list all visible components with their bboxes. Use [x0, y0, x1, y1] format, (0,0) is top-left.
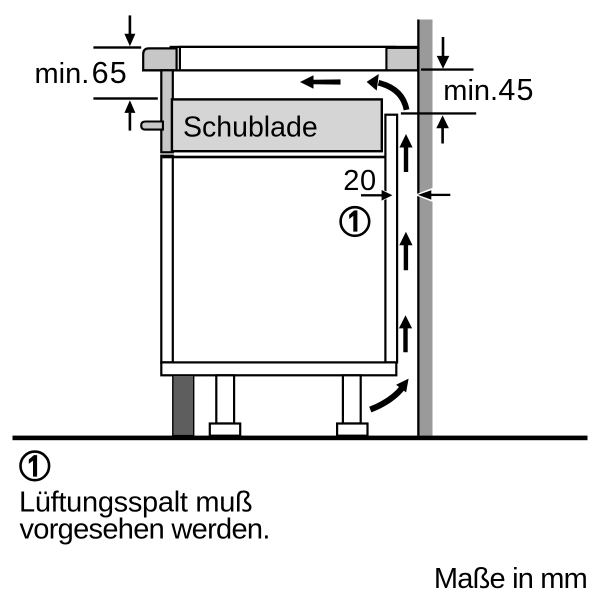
svg-text:vorgesehen werden.: vorgesehen werden.	[20, 514, 270, 546]
svg-text:Maße in mm: Maße in mm	[434, 563, 587, 595]
svg-text:Schublade: Schublade	[183, 112, 318, 144]
svg-text:20: 20	[343, 165, 376, 197]
svg-text:45: 45	[498, 73, 534, 107]
svg-text:min.: min.	[443, 75, 498, 107]
svg-text:65: 65	[92, 56, 128, 90]
svg-text:min.: min.	[35, 58, 90, 90]
